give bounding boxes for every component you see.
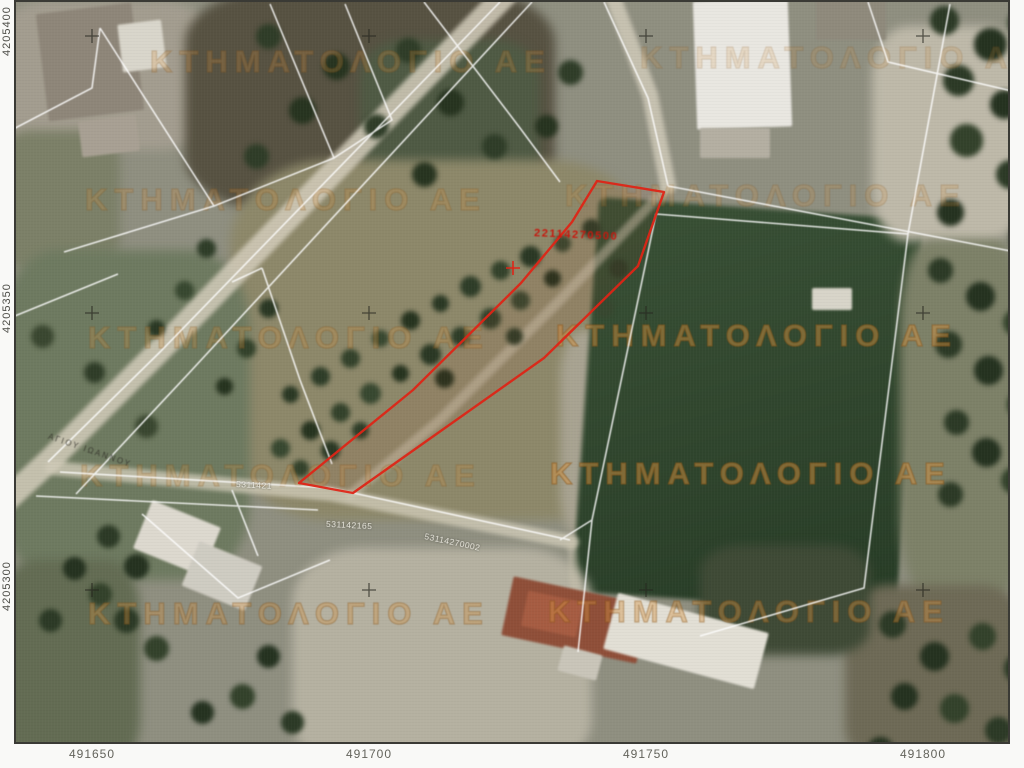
x-axis-tick: 491750 xyxy=(623,747,669,761)
parcel-number-label: 5311421 xyxy=(236,479,272,491)
orthophoto-layer: ΚΤΗΜΑΤΟΛΟΓΙΟ ΑΕ ΚΤΗΜΑΤΟΛΟΓΙΟ ΑΕ ΚΤΗΜΑΤΟΛ… xyxy=(14,0,1010,744)
y-axis-tick: 4205350 xyxy=(1,283,13,333)
y-axis-tick: 4205400 xyxy=(1,6,13,56)
parcel-vector-layer xyxy=(14,0,1010,744)
y-axis-tick: 4205300 xyxy=(1,561,13,611)
selected-parcel-cross-icon xyxy=(506,261,520,275)
x-axis-tick: 491800 xyxy=(900,747,946,761)
x-axis-tick: 491700 xyxy=(346,747,392,761)
x-axis-tick: 491650 xyxy=(69,747,115,761)
cadastral-map-viewer: ΚΤΗΜΑΤΟΛΟΓΙΟ ΑΕ ΚΤΗΜΑΤΟΛΟΓΙΟ ΑΕ ΚΤΗΜΑΤΟΛ… xyxy=(0,0,1024,768)
map-canvas[interactable]: ΚΤΗΜΑΤΟΛΟΓΙΟ ΑΕ ΚΤΗΜΑΤΟΛΟΓΙΟ ΑΕ ΚΤΗΜΑΤΟΛ… xyxy=(14,0,1010,744)
selected-parcel-outline[interactable] xyxy=(299,181,664,493)
